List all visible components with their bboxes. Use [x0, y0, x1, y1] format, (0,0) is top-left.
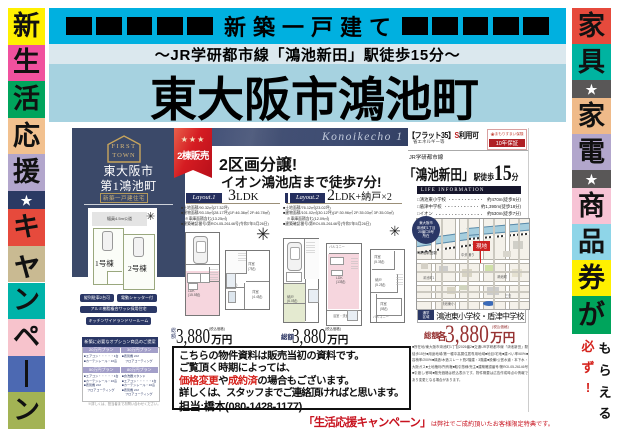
svg-text:TOWN: TOWN — [112, 152, 135, 159]
svg-text:FIRST: FIRST — [111, 143, 136, 150]
